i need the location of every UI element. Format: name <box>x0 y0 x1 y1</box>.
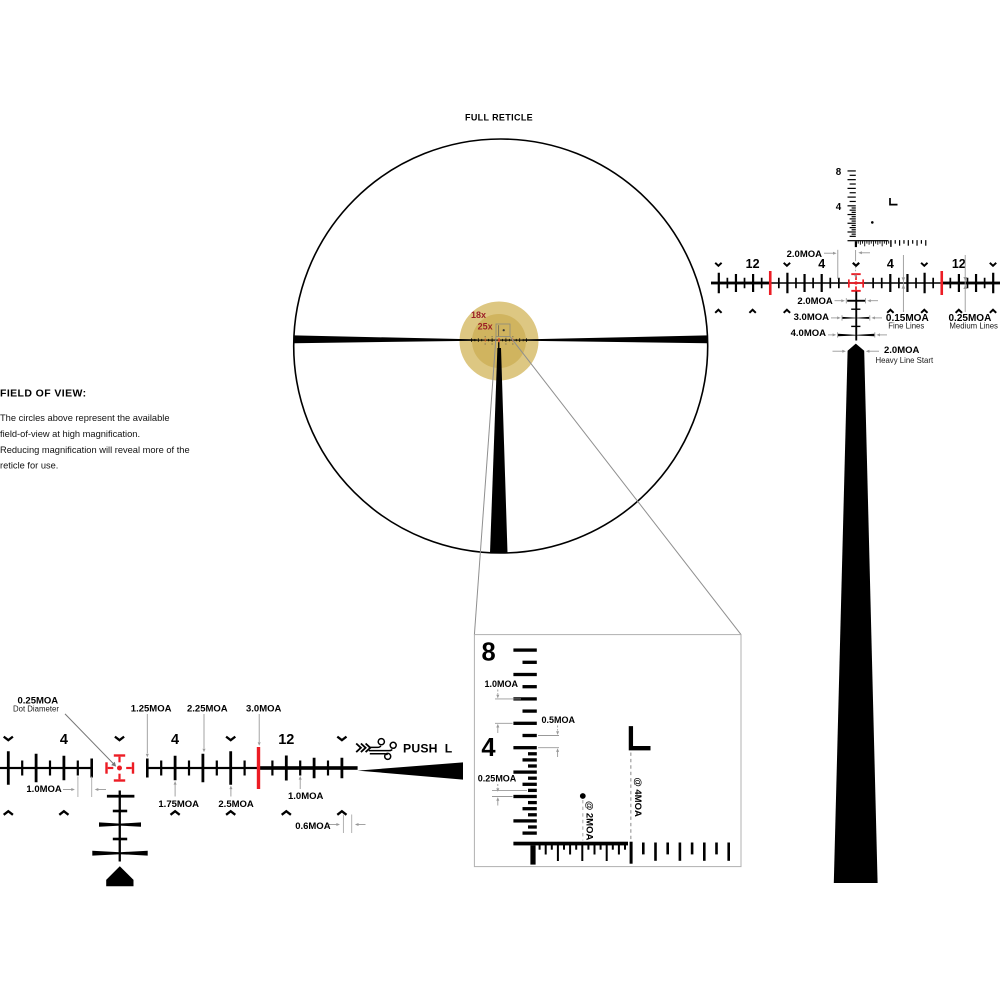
svg-text:Heavy Line Start: Heavy Line Start <box>876 356 934 365</box>
svg-text:0.5MOA: 0.5MOA <box>542 715 576 725</box>
svg-text:3.0MOA: 3.0MOA <box>246 704 282 715</box>
svg-text:4: 4 <box>836 202 842 213</box>
svg-text:4: 4 <box>171 732 179 748</box>
svg-text:reticle for use.: reticle for use. <box>0 461 58 471</box>
svg-text:0.25MOA: 0.25MOA <box>478 773 517 783</box>
svg-text:Reducing magnification will re: Reducing magnification will reveal more … <box>0 445 190 455</box>
svg-text:2.5MOA: 2.5MOA <box>218 799 254 810</box>
svg-text:4.0MOA: 4.0MOA <box>791 328 827 339</box>
svg-text:8: 8 <box>836 167 842 178</box>
svg-text:25x: 25x <box>478 322 493 332</box>
svg-text:4: 4 <box>481 734 496 762</box>
svg-text:12: 12 <box>952 257 966 271</box>
svg-text:0.6MOA: 0.6MOA <box>295 821 331 832</box>
svg-text:12: 12 <box>746 257 760 271</box>
svg-text:3.0MOA: 3.0MOA <box>794 312 830 323</box>
svg-text:PUSH: PUSH <box>403 741 438 755</box>
svg-text:FIELD OF VIEW:: FIELD OF VIEW: <box>0 388 87 400</box>
svg-text:4: 4 <box>60 732 68 748</box>
svg-text:The circles above represent th: The circles above represent the availabl… <box>0 413 170 423</box>
svg-text:Dot Diameter: Dot Diameter <box>13 704 59 713</box>
svg-text:18x: 18x <box>471 310 486 320</box>
svg-text:1.75MOA: 1.75MOA <box>158 799 199 810</box>
svg-text:1.25MOA: 1.25MOA <box>131 704 172 715</box>
svg-text:8: 8 <box>482 638 496 666</box>
svg-text:4: 4 <box>887 257 894 271</box>
svg-text:2.25MOA: 2.25MOA <box>187 704 228 715</box>
svg-text:1.0MOA: 1.0MOA <box>485 679 519 689</box>
svg-text:Fine Lines: Fine Lines <box>888 322 924 331</box>
svg-text:1.0MOA: 1.0MOA <box>288 791 324 802</box>
svg-text:Medium Lines: Medium Lines <box>949 322 998 331</box>
svg-text:field-of-view at high magnific: field-of-view at high magnification. <box>0 429 140 439</box>
svg-text:L: L <box>445 741 453 755</box>
svg-text:@ 4MOA: @ 4MOA <box>632 778 643 817</box>
svg-text:2.0MOA: 2.0MOA <box>884 345 920 356</box>
svg-text:12: 12 <box>278 732 294 748</box>
svg-text:2.0MOA: 2.0MOA <box>797 296 833 307</box>
svg-text:1.0MOA: 1.0MOA <box>26 784 62 795</box>
svg-text:@ 2MOA: @ 2MOA <box>583 801 594 840</box>
svg-text:FULL RETICLE: FULL RETICLE <box>465 112 533 122</box>
svg-text:2.0MOA: 2.0MOA <box>787 249 823 260</box>
